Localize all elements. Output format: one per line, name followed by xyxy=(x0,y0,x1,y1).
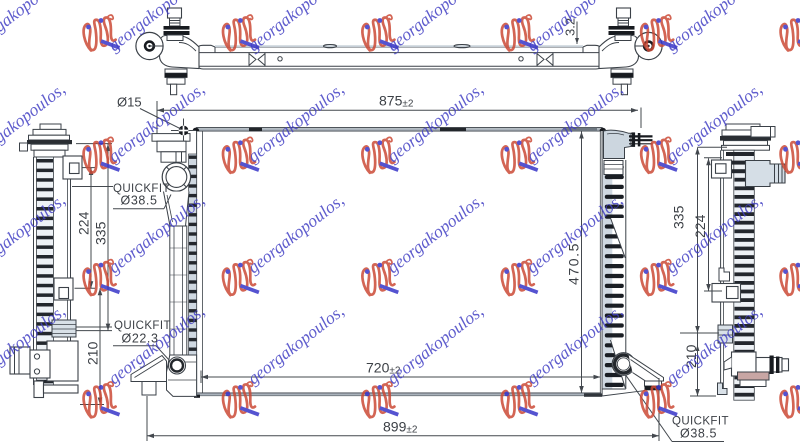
svg-text:Ø38.5: Ø38.5 xyxy=(121,194,158,208)
svg-text:210: 210 xyxy=(85,341,101,365)
svg-text:Ø38.5: Ø38.5 xyxy=(680,427,717,441)
svg-text:224: 224 xyxy=(76,211,92,235)
svg-text:Ø15: Ø15 xyxy=(117,95,142,110)
svg-text:335: 335 xyxy=(671,205,687,229)
svg-text:335: 335 xyxy=(93,221,109,245)
